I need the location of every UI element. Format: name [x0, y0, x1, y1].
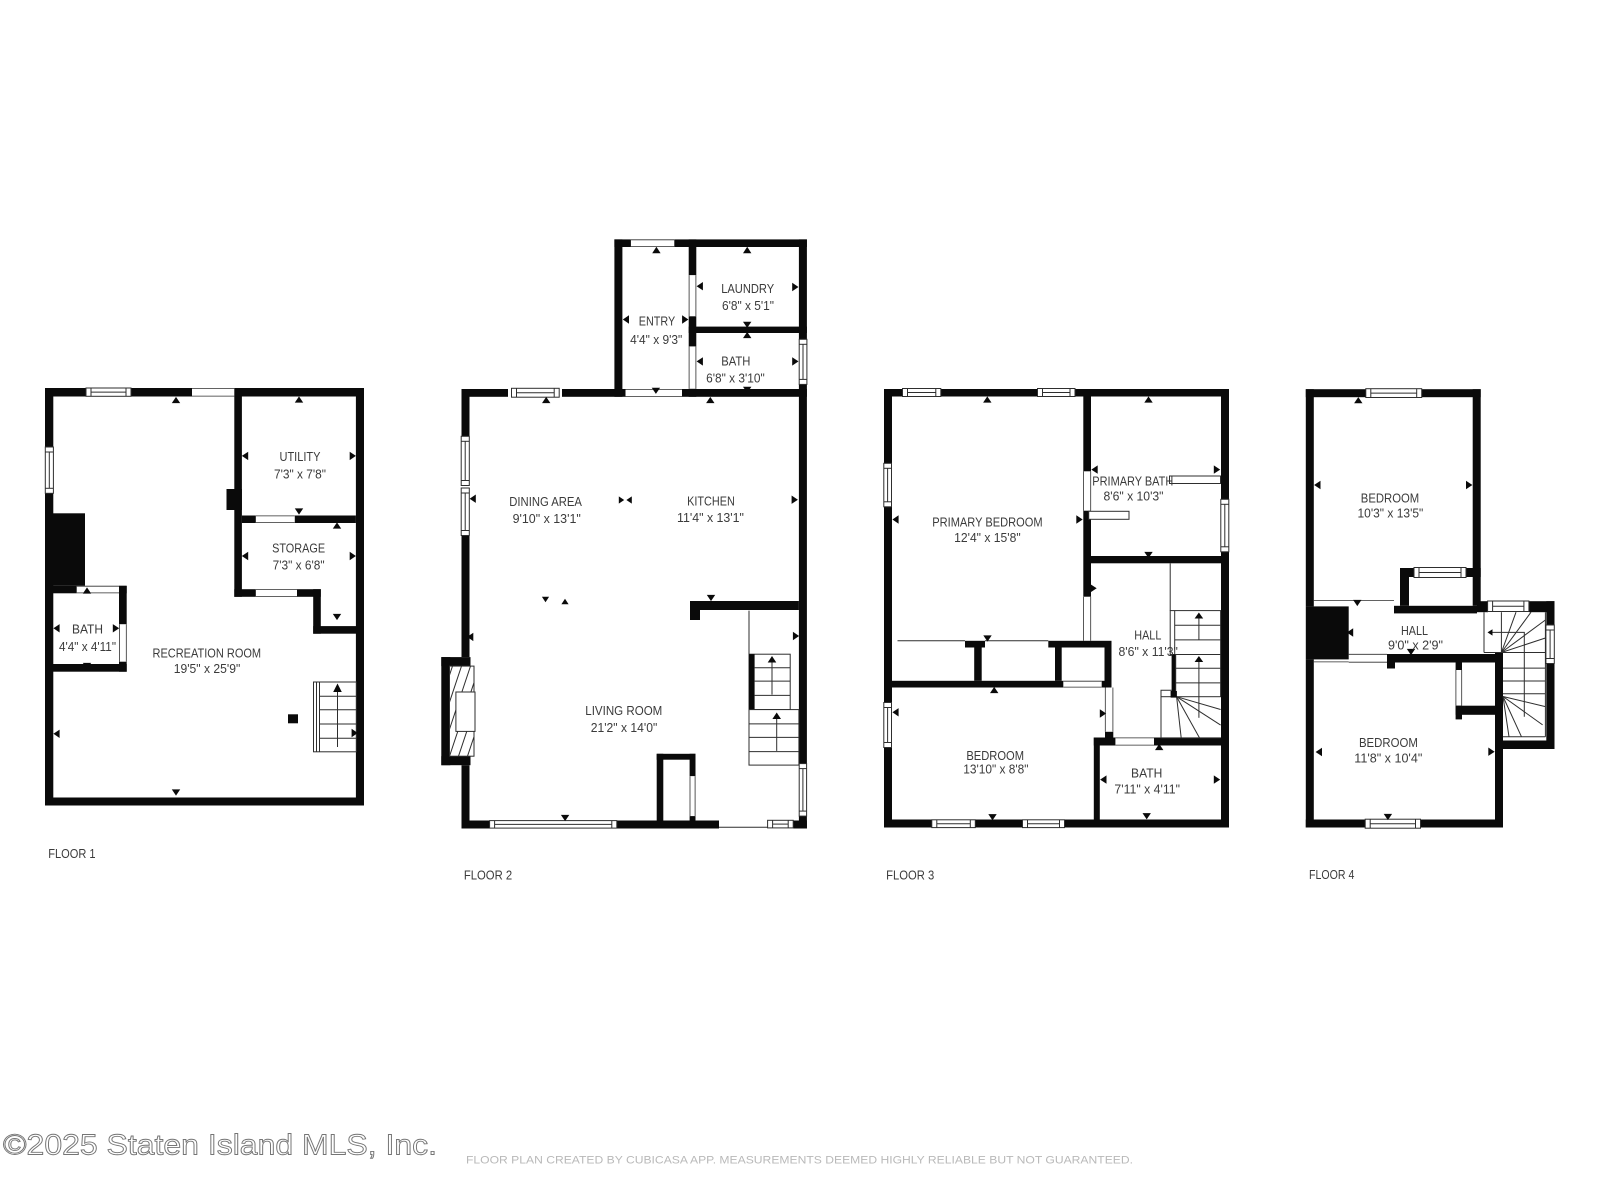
svg-text:©2025 Staten Island MLS, Inc.: ©2025 Staten Island MLS, Inc. — [3, 1130, 437, 1162]
svg-text:BEDROOM: BEDROOM — [1359, 736, 1418, 750]
svg-text:4'4" x 4'11": 4'4" x 4'11" — [59, 640, 116, 654]
svg-text:13'10" x 8'8": 13'10" x 8'8" — [963, 763, 1028, 777]
svg-text:8'6" x 11'3": 8'6" x 11'3" — [1119, 645, 1178, 659]
svg-text:9'0" x 2'9": 9'0" x 2'9" — [1388, 639, 1443, 653]
svg-text:PRIMARY BEDROOM: PRIMARY BEDROOM — [932, 516, 1042, 530]
svg-text:19'5" x 25'9": 19'5" x 25'9" — [174, 662, 241, 676]
svg-text:11'4" x 13'1": 11'4" x 13'1" — [677, 511, 744, 525]
svg-text:9'10" x 13'1": 9'10" x 13'1" — [513, 512, 581, 526]
svg-text:8'6" x 10'3": 8'6" x 10'3" — [1104, 490, 1164, 504]
svg-text:STORAGE: STORAGE — [272, 542, 325, 556]
svg-text:FLOOR 1: FLOOR 1 — [48, 847, 95, 861]
svg-text:21'2" x 14'0": 21'2" x 14'0" — [591, 721, 658, 735]
svg-text:LAUNDRY: LAUNDRY — [721, 282, 775, 296]
svg-text:FLOOR 3: FLOOR 3 — [886, 868, 934, 882]
svg-text:ENTRY: ENTRY — [639, 314, 676, 328]
svg-text:7'3" x 6'8": 7'3" x 6'8" — [273, 559, 325, 573]
svg-text:DINING AREA: DINING AREA — [509, 495, 582, 509]
svg-text:FLOOR PLAN CREATED BY CUBICASA: FLOOR PLAN CREATED BY CUBICASA APP. MEAS… — [466, 1155, 1133, 1167]
svg-text:6'8" x 5'1": 6'8" x 5'1" — [722, 299, 774, 313]
svg-text:BATH: BATH — [1131, 766, 1162, 780]
svg-text:KITCHEN: KITCHEN — [687, 494, 735, 508]
svg-text:HALL: HALL — [1401, 624, 1428, 638]
svg-text:BATH: BATH — [721, 355, 750, 369]
svg-text:7'3" x 7'8": 7'3" x 7'8" — [274, 467, 326, 481]
svg-text:BATH: BATH — [72, 623, 103, 637]
svg-text:FLOOR 2: FLOOR 2 — [464, 868, 512, 882]
svg-text:11'8" x 10'4": 11'8" x 10'4" — [1354, 752, 1422, 766]
svg-text:6'8" x 3'10": 6'8" x 3'10" — [706, 372, 765, 386]
svg-text:4'4" x 9'3": 4'4" x 9'3" — [630, 333, 682, 347]
svg-text:HALL: HALL — [1134, 629, 1161, 643]
svg-text:12'4" x 15'8": 12'4" x 15'8" — [954, 531, 1021, 545]
svg-text:BEDROOM: BEDROOM — [966, 749, 1024, 763]
svg-text:FLOOR 4: FLOOR 4 — [1309, 868, 1354, 882]
svg-text:7'11" x 4'11": 7'11" x 4'11" — [1114, 783, 1180, 797]
svg-text:UTILITY: UTILITY — [280, 450, 322, 464]
svg-text:LIVING ROOM: LIVING ROOM — [585, 704, 662, 718]
svg-text:RECREATION ROOM: RECREATION ROOM — [153, 647, 262, 661]
svg-text:BEDROOM: BEDROOM — [1361, 492, 1419, 506]
svg-text:PRIMARY BATH: PRIMARY BATH — [1092, 475, 1173, 489]
svg-text:10'3" x 13'5": 10'3" x 13'5" — [1358, 507, 1424, 521]
